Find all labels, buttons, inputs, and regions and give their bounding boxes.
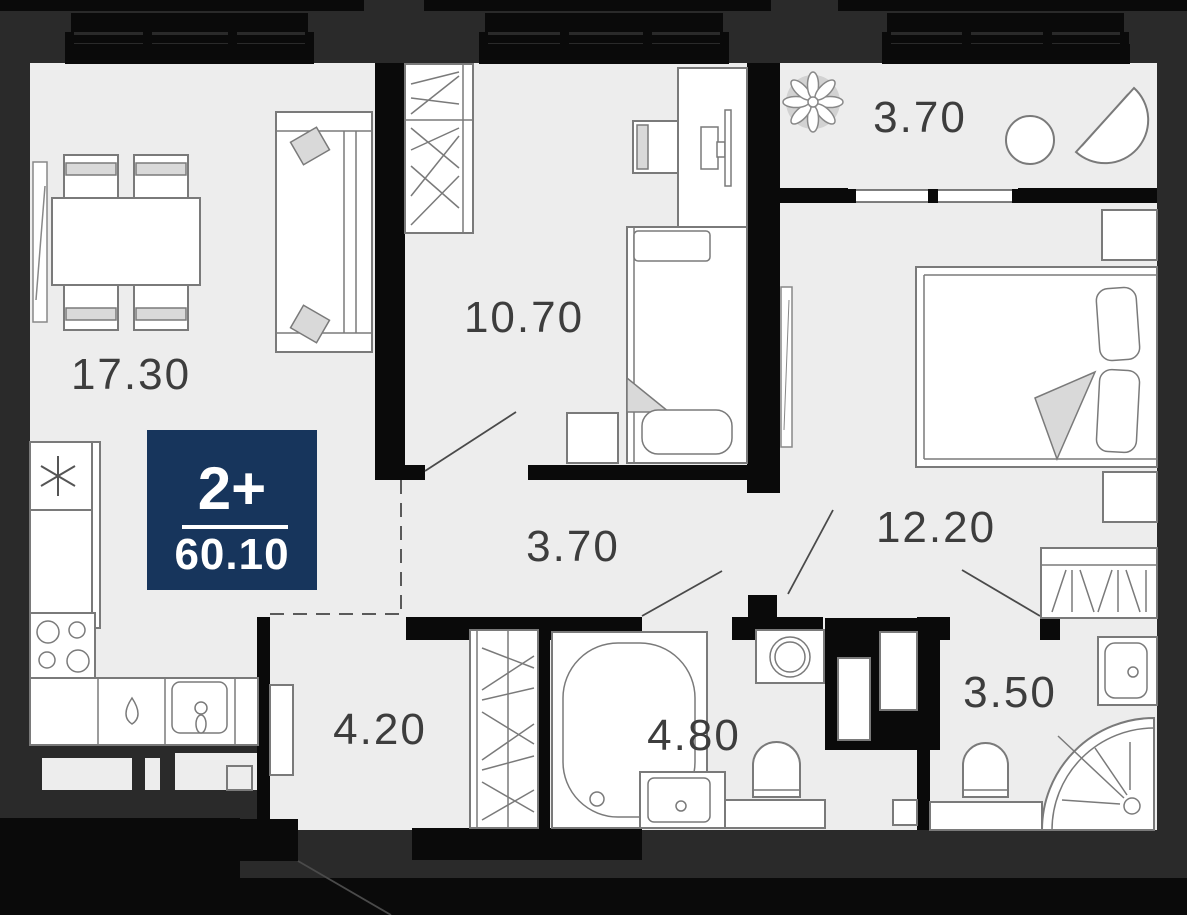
bathroom-counter xyxy=(725,800,825,828)
room-area-label: 3.70 xyxy=(526,522,620,571)
plumbing-duct xyxy=(825,618,940,750)
badge-rooms-count: 2+ xyxy=(198,455,266,522)
desk-chair xyxy=(633,121,678,173)
fridge xyxy=(30,442,92,510)
room-area-label: 4.80 xyxy=(647,711,741,760)
sofa xyxy=(276,112,372,352)
nightstand xyxy=(1103,472,1157,522)
facade-windows-top xyxy=(0,0,1187,64)
balcony-window xyxy=(846,189,1022,203)
toilet xyxy=(753,742,800,797)
plant-icon xyxy=(783,72,843,132)
room-area-label: 12.20 xyxy=(876,503,996,552)
nightstand xyxy=(1102,210,1157,260)
bathroom-sink xyxy=(640,772,725,828)
hall-cabinet xyxy=(270,685,293,775)
balcony-table xyxy=(1006,116,1054,164)
pillow xyxy=(1096,369,1140,453)
room-area-label: 3.70 xyxy=(873,93,967,142)
dining-table xyxy=(52,198,200,285)
wardrobe xyxy=(1041,548,1157,618)
living-room-window xyxy=(33,162,47,322)
double-bed xyxy=(916,267,1157,467)
sink xyxy=(1098,637,1157,705)
pillow xyxy=(634,231,710,261)
chair xyxy=(64,155,118,200)
chair xyxy=(134,155,188,200)
room-area-label: 10.70 xyxy=(464,293,584,342)
pillow xyxy=(1096,287,1141,362)
single-bed xyxy=(627,227,747,463)
small-cabinet xyxy=(893,800,917,825)
shower-room-counter xyxy=(930,802,1042,830)
hall-wardrobe xyxy=(470,630,538,828)
nightstand xyxy=(567,413,618,463)
room-area-label: 17.30 xyxy=(71,350,191,399)
blanket xyxy=(642,410,732,454)
badge-total-area: 60.10 xyxy=(174,530,289,579)
wardrobe xyxy=(405,64,473,233)
room-area-label: 3.50 xyxy=(963,668,1057,717)
apartment-floor-plan: 17.30 10.70 3.70 12.20 3.70 4.20 4.80 3.… xyxy=(0,0,1187,915)
room-area-label: 4.20 xyxy=(333,705,427,754)
open-door-leaf xyxy=(781,287,792,447)
kitchen-cabinet xyxy=(30,510,92,628)
floor-plan-svg: 17.30 10.70 3.70 12.20 3.70 4.20 4.80 3.… xyxy=(0,0,1187,915)
toilet xyxy=(963,743,1008,797)
washing-machine xyxy=(756,630,824,683)
apartment-badge: 2+ 60.10 xyxy=(147,430,317,590)
